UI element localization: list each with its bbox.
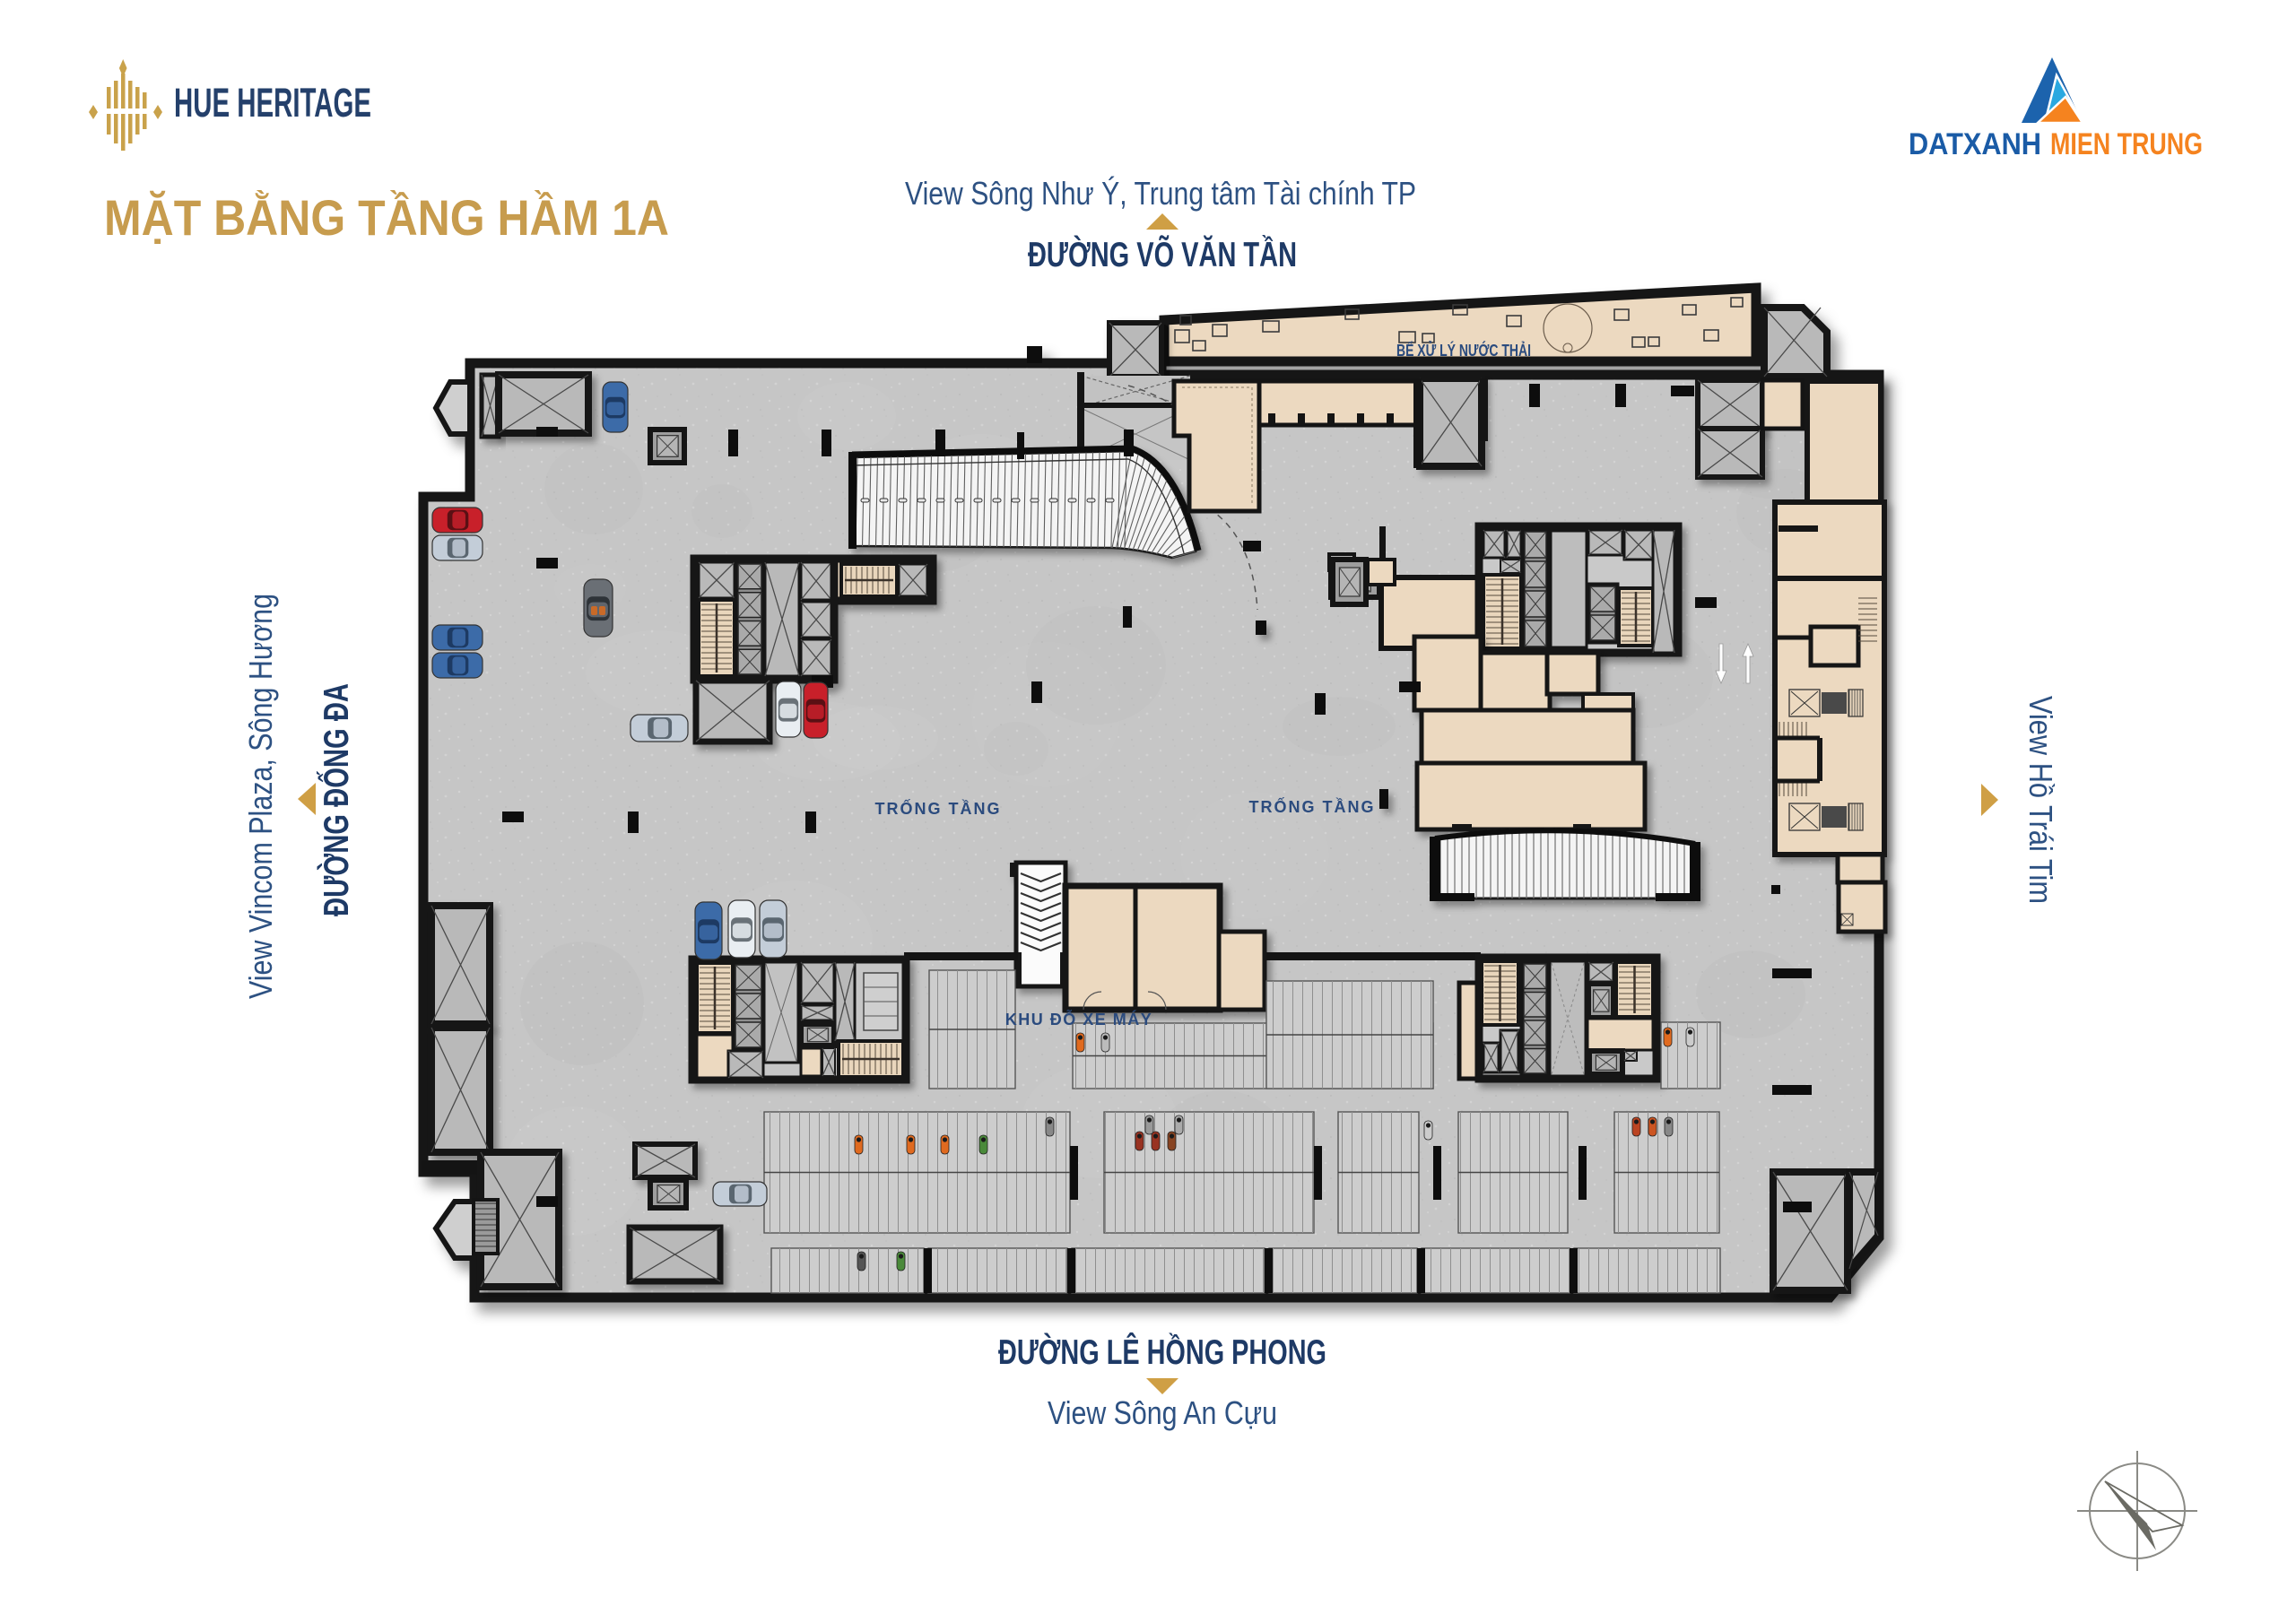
- svg-text:DATXANH: DATXANH: [1909, 127, 2041, 161]
- svg-text:MẶT BẰNG TẦNG HẦM 1A: MẶT BẰNG TẦNG HẦM 1A: [104, 189, 669, 246]
- svg-text:HUE HERITAGE: HUE HERITAGE: [174, 80, 371, 126]
- svg-text:KHU ĐỖ XE MÁY: KHU ĐỖ XE MÁY: [1005, 1010, 1153, 1028]
- svg-text:ĐƯỜNG ĐỐNG ĐA: ĐƯỜNG ĐỐNG ĐA: [316, 683, 356, 916]
- svg-text:TRỐNG TẦNG: TRỐNG TẦNG: [875, 799, 1002, 818]
- svg-text:View Hồ Trái Tim: View Hồ Trái Tim: [2022, 696, 2059, 904]
- svg-text:MIEN TRUNG: MIEN TRUNG: [2050, 127, 2203, 161]
- svg-text:ĐƯỜNG LÊ HỒNG PHONG: ĐƯỜNG LÊ HỒNG PHONG: [998, 1332, 1326, 1372]
- svg-text:View Sông An Cựu: View Sông An Cựu: [1048, 1394, 1277, 1431]
- svg-text:TRỐNG TẦNG: TRỐNG TẦNG: [1249, 797, 1376, 816]
- svg-text:View Sông Như Ý, Trung tâm Tài: View Sông Như Ý, Trung tâm Tài chính TP: [905, 175, 1416, 212]
- svg-text:View Vincom Plaza, Sông Hương: View Vincom Plaza, Sông Hương: [242, 594, 279, 999]
- svg-text:ĐƯỜNG VÕ VĂN TẦN: ĐƯỜNG VÕ VĂN TẦN: [1028, 235, 1297, 274]
- svg-text:BỂ XỬ LÝ NƯỚC THẢI: BỂ XỬ LÝ NƯỚC THẢI: [1396, 341, 1531, 360]
